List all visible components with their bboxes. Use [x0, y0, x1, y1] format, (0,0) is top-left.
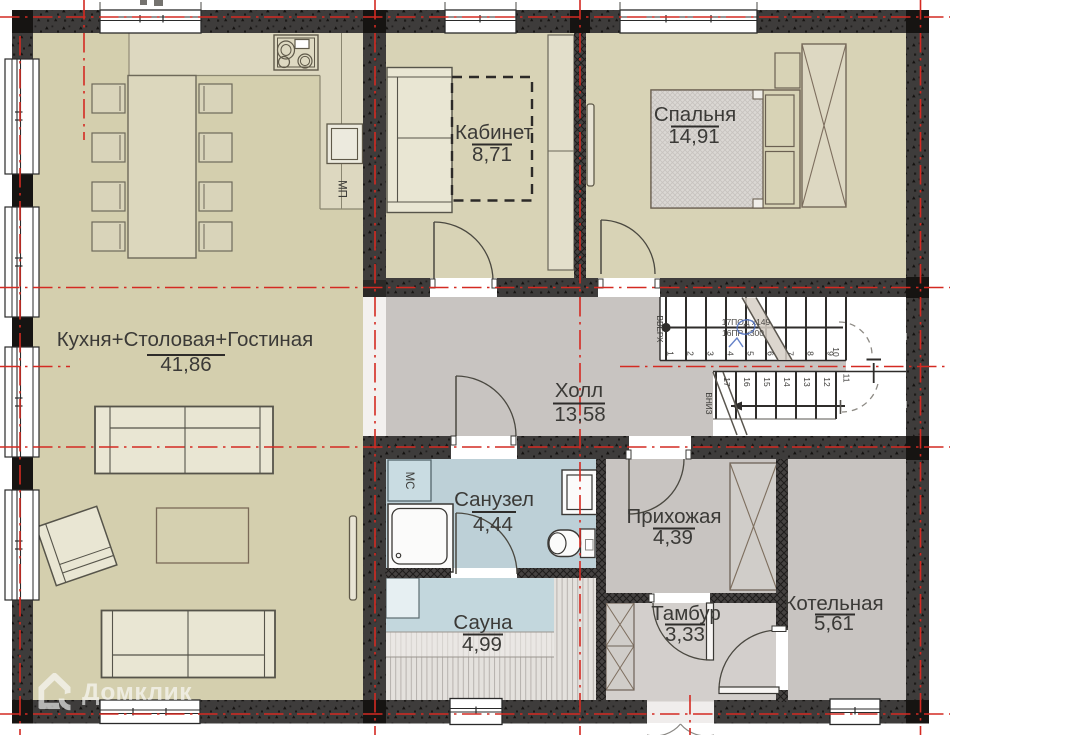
svg-text:Прихожая: Прихожая	[627, 505, 722, 528]
svg-text:17ПОД х149: 17ПОД х149	[722, 317, 771, 327]
svg-text:3: 3	[706, 351, 716, 356]
svg-text:6: 6	[766, 351, 776, 356]
svg-text:ВНИЗ: ВНИЗ	[704, 392, 713, 414]
svg-text:14: 14	[782, 377, 792, 387]
svg-text:5: 5	[746, 351, 756, 356]
svg-text:МС: МС	[403, 472, 415, 490]
svg-text:МП: МП	[336, 180, 348, 198]
svg-text:12: 12	[822, 377, 832, 387]
svg-text:Спальня: Спальня	[654, 103, 736, 126]
svg-text:Кабинет: Кабинет	[455, 121, 534, 144]
svg-text:41,86: 41,86	[160, 353, 211, 376]
svg-text:14,91: 14,91	[668, 125, 719, 148]
svg-text:Домклик: Домклик	[82, 679, 192, 706]
svg-text:13,58: 13,58	[554, 403, 605, 426]
svg-text:16: 16	[742, 377, 752, 387]
svg-text:5,61: 5,61	[814, 612, 854, 635]
svg-text:1: 1	[666, 351, 676, 356]
svg-text:8,71: 8,71	[472, 143, 512, 166]
svg-text:Санузел: Санузел	[454, 488, 534, 511]
svg-text:13: 13	[802, 377, 812, 387]
svg-text:4,99: 4,99	[462, 633, 502, 656]
svg-text:Сауна: Сауна	[453, 611, 513, 634]
svg-text:16ПР х300: 16ПР х300	[722, 328, 764, 338]
svg-text:4,44: 4,44	[473, 513, 513, 536]
svg-text:17: 17	[722, 377, 732, 387]
svg-text:Кухня+Столовая+Гостиная: Кухня+Столовая+Гостиная	[57, 328, 314, 351]
svg-text:3,33: 3,33	[665, 623, 705, 646]
svg-text:Холл: Холл	[555, 379, 603, 402]
svg-text:Тамбур: Тамбур	[651, 602, 721, 625]
svg-text:2: 2	[686, 351, 696, 356]
svg-text:4,39: 4,39	[653, 526, 693, 549]
svg-text:ВВЕРХ: ВВЕРХ	[655, 316, 664, 343]
svg-text:8: 8	[806, 351, 816, 356]
svg-text:4: 4	[726, 351, 736, 356]
svg-text:15: 15	[762, 377, 772, 387]
svg-text:11: 11	[842, 374, 852, 383]
svg-text:7: 7	[786, 351, 796, 356]
svg-text:10: 10	[831, 347, 841, 357]
